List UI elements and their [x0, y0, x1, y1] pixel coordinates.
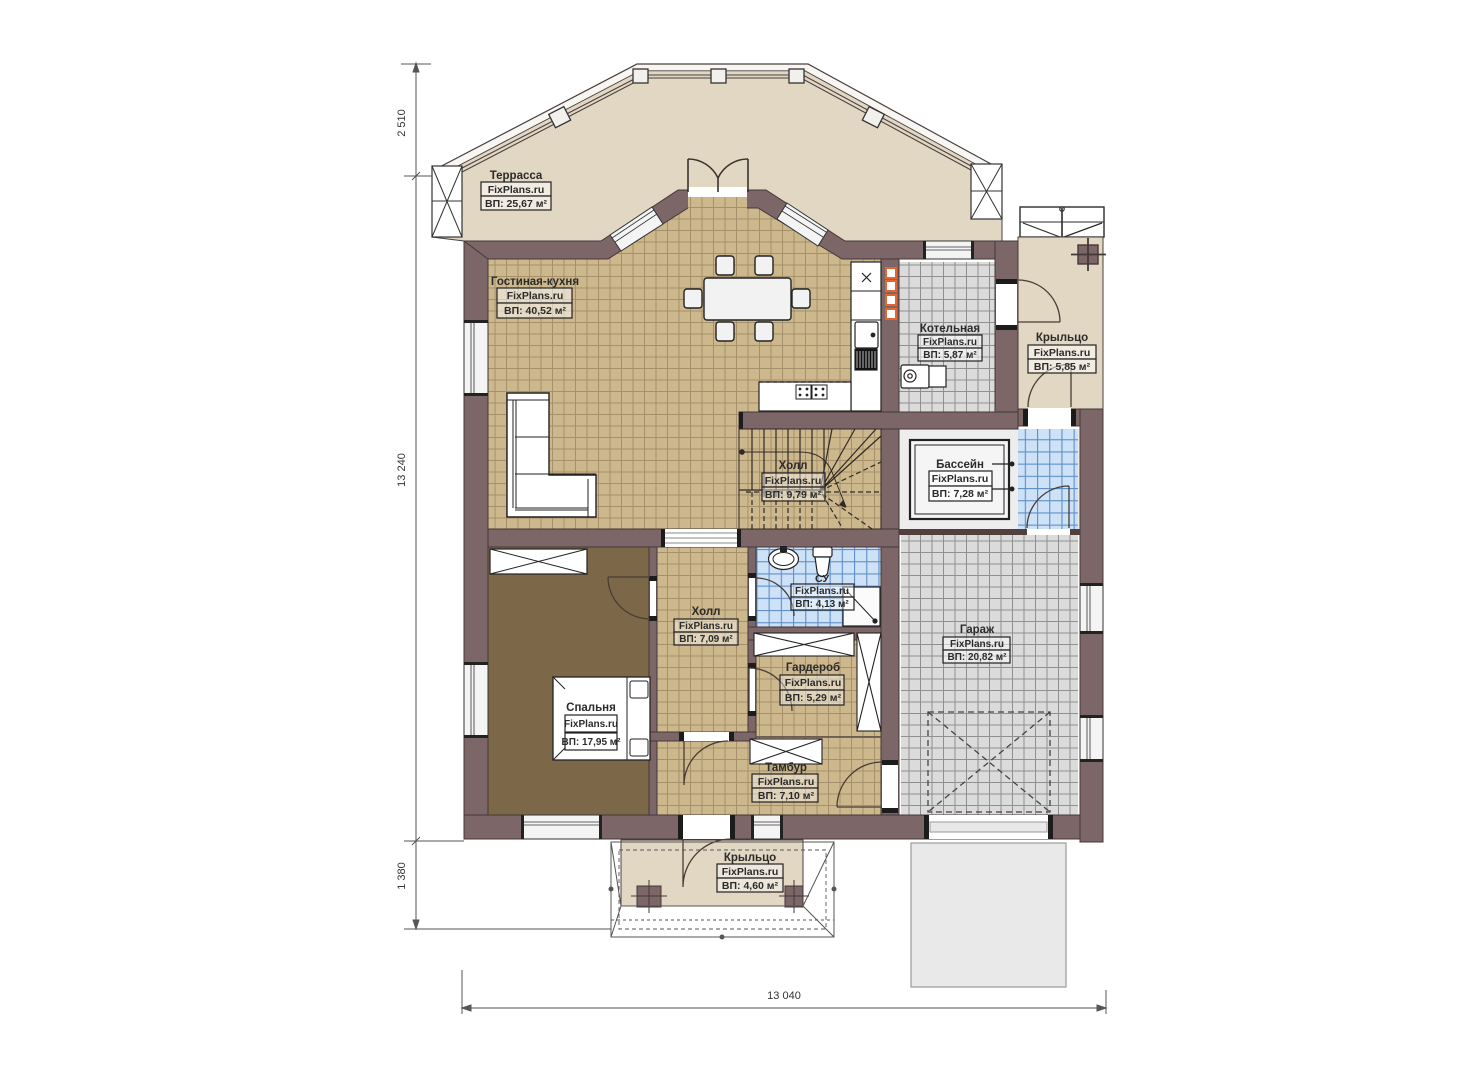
svg-text:ВП: 9,79 м²: ВП: 9,79 м² [765, 489, 822, 501]
svg-text:FixPlans.ru: FixPlans.ru [488, 184, 545, 196]
svg-text:ВП: 5,85 м²: ВП: 5,85 м² [1034, 361, 1091, 373]
svg-text:Гардероб: Гардероб [786, 662, 840, 674]
svg-text:2 510: 2 510 [396, 109, 408, 137]
svg-text:FixPlans.ru: FixPlans.ru [507, 290, 564, 302]
svg-text:ВП: 7,10 м²: ВП: 7,10 м² [758, 790, 815, 802]
svg-text:FixPlans.ru: FixPlans.ru [722, 866, 779, 878]
svg-text:ВП: 5,29 м²: ВП: 5,29 м² [785, 692, 842, 704]
svg-text:ВП: 5,87 м²: ВП: 5,87 м² [923, 350, 977, 361]
svg-text:13 240: 13 240 [396, 453, 408, 487]
svg-text:ВП: 7,28 м²: ВП: 7,28 м² [932, 488, 989, 500]
svg-text:Котельная: Котельная [920, 323, 980, 335]
svg-text:Бассейн: Бассейн [936, 459, 984, 471]
svg-text:FixPlans.ru: FixPlans.ru [564, 719, 618, 730]
svg-text:ВП: 4,60 м²: ВП: 4,60 м² [722, 880, 779, 892]
svg-text:FixPlans.ru: FixPlans.ru [785, 677, 842, 689]
svg-text:FixPlans.ru: FixPlans.ru [765, 475, 822, 487]
svg-text:Гараж: Гараж [960, 624, 995, 636]
svg-text:Крыльцо: Крыльцо [1036, 332, 1088, 344]
svg-text:Спальня: Спальня [566, 702, 616, 714]
svg-text:ВП: 25,67 м²: ВП: 25,67 м² [485, 198, 548, 210]
svg-text:ВП: 7,09 м²: ВП: 7,09 м² [679, 634, 733, 645]
svg-text:FixPlans.ru: FixPlans.ru [932, 473, 989, 485]
svg-text:FixPlans.ru: FixPlans.ru [950, 639, 1004, 650]
svg-text:13 040: 13 040 [767, 990, 801, 1002]
svg-text:Гостиная-кухня: Гостиная-кухня [491, 276, 579, 288]
svg-text:Тамбур: Тамбур [765, 762, 807, 774]
svg-text:Холл: Холл [779, 460, 808, 472]
svg-text:FixPlans.ru: FixPlans.ru [758, 776, 815, 788]
svg-text:FixPlans.ru: FixPlans.ru [1034, 347, 1091, 359]
svg-text:ВП: 17,95 м²: ВП: 17,95 м² [561, 737, 621, 748]
svg-text:FixPlans.ru: FixPlans.ru [679, 621, 733, 632]
svg-text:ВП: 4,13 м²: ВП: 4,13 м² [795, 599, 849, 610]
svg-text:FixPlans.ru: FixPlans.ru [923, 337, 977, 348]
svg-text:ВП: 20,82 м²: ВП: 20,82 м² [947, 652, 1007, 663]
svg-text:Холл: Холл [692, 606, 721, 618]
svg-text:Крыльцо: Крыльцо [724, 852, 776, 864]
svg-text:1 380: 1 380 [396, 862, 408, 890]
svg-text:FixPlans.ru: FixPlans.ru [795, 586, 849, 597]
svg-text:ВП: 40,52 м²: ВП: 40,52 м² [504, 305, 567, 317]
svg-text:СУ: СУ [815, 573, 829, 585]
svg-text:Террасса: Террасса [490, 170, 543, 182]
